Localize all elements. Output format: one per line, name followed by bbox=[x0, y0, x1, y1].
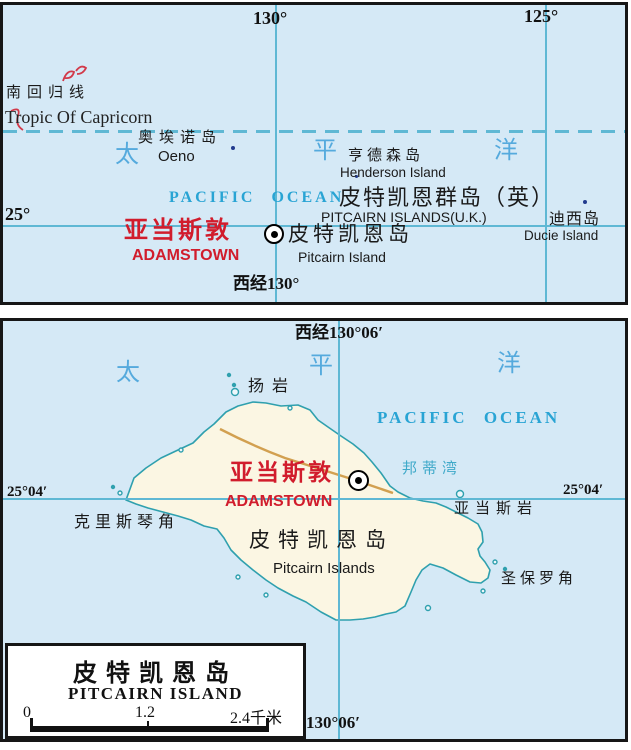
west-lon-130-06-label: 西经130°06′ bbox=[295, 324, 383, 341]
legend-title-en: PITCAIRN ISLAND bbox=[8, 684, 303, 704]
young-rock-label: 扬岩 bbox=[248, 379, 296, 395]
christian-point-label: 克里斯琴角 bbox=[74, 515, 179, 531]
tropic-label-zh: 南回归线 bbox=[6, 85, 90, 100]
oeno-island-dot bbox=[231, 146, 235, 150]
lon-label-130: 130° bbox=[253, 9, 287, 27]
meridian-line-125w bbox=[545, 5, 547, 302]
ducie-island-dot bbox=[583, 200, 587, 204]
tropic-of-capricorn-line bbox=[3, 130, 625, 133]
oeno-label-zh: 奥埃诺岛 bbox=[138, 130, 222, 145]
pacific-ocean-label: PACIFIC OCEAN bbox=[377, 409, 560, 426]
scale-tick-2-4: 2.4千米 bbox=[230, 704, 282, 728]
adams-rock-islet bbox=[457, 491, 464, 498]
ocean-char-ping: 平 bbox=[313, 139, 337, 163]
scale-bar-tick bbox=[30, 718, 33, 732]
henderson-label-zh: 亨德森岛 bbox=[348, 148, 424, 163]
adamstown-label-en: ADAMSTOWN bbox=[132, 248, 239, 264]
capital-symbol bbox=[348, 470, 369, 491]
meridian-line-130w bbox=[275, 5, 277, 302]
lat-label-right: 25°04′ bbox=[563, 483, 603, 498]
scale-bar-tick bbox=[266, 718, 269, 732]
capital-symbol bbox=[264, 224, 284, 244]
ocean-char-yang: 洋 bbox=[494, 139, 518, 163]
pitcairn-island-label-en: Pitcairn Island bbox=[298, 250, 386, 264]
lat-label-left: 25°04′ bbox=[7, 485, 47, 500]
lat-label-25: 25° bbox=[5, 205, 30, 223]
lon-label-125: 125° bbox=[524, 7, 558, 25]
adamstown-label-en: ADAMSTOWN bbox=[225, 494, 332, 510]
pitcairn-island-label-en: Pitcairn Islands bbox=[273, 561, 375, 576]
legend-box: 皮特凯恩岛 PITCAIRN ISLAND 0 1.2 2.4千米 bbox=[5, 643, 306, 739]
detail-map-panel: 西经130°06′ 太 平 洋 PACIFIC OCEAN 扬岩 邦蒂湾 亚当斯… bbox=[0, 318, 628, 742]
bottom-lon-130-06-label: 130°06′ bbox=[306, 714, 360, 731]
adamstown-label-zh: 亚当斯敦 bbox=[124, 219, 232, 243]
ocean-char-tai: 太 bbox=[116, 361, 140, 385]
scale-bar bbox=[31, 726, 268, 732]
bounty-bay-label: 邦蒂湾 bbox=[402, 461, 462, 476]
tropic-label-en: Tropic Of Capricorn bbox=[5, 108, 152, 126]
ocean-char-tai: 太 bbox=[115, 143, 139, 167]
adams-rock-label: 亚当斯岩 bbox=[454, 501, 538, 516]
overview-map-panel: 130° 125° 南回归线 Tropic Of Capricorn 奥埃诺岛 … bbox=[0, 2, 628, 305]
pitcairn-group-label-en: PITCAIRN ISLANDS(U.K.) bbox=[321, 210, 487, 224]
oeno-label-en: Oeno bbox=[158, 149, 195, 164]
scale-tick-1-2: 1.2 bbox=[135, 704, 155, 722]
pacific-ocean-label: PACIFIC OCEAN bbox=[169, 190, 344, 206]
pitcairn-island-label-zh: 皮特凯恩岛 bbox=[288, 224, 413, 245]
st-pauls-point-label: 圣保罗角 bbox=[501, 571, 577, 586]
pitcairn-island-label-zh: 皮特凯恩岛 bbox=[249, 530, 394, 551]
ocean-char-ping: 平 bbox=[309, 354, 333, 378]
adamstown-label-zh: 亚当斯敦 bbox=[230, 461, 334, 484]
legend-title-zh: 皮特凯恩岛 bbox=[8, 653, 303, 688]
west-lon-130-label: 西经130° bbox=[233, 275, 299, 292]
pitcairn-group-label-zh: 皮特凯恩群岛（英） bbox=[339, 187, 555, 209]
ducie-label-en: Ducie Island bbox=[524, 229, 598, 243]
scale-bar-tick bbox=[147, 721, 149, 732]
henderson-label-en: Henderson Island bbox=[340, 166, 446, 180]
island-outline bbox=[126, 402, 490, 620]
ocean-char-yang: 洋 bbox=[497, 352, 521, 376]
map-stage: 130° 125° 南回归线 Tropic Of Capricorn 奥埃诺岛 … bbox=[0, 0, 631, 750]
ducie-label-zh: 迪西岛 bbox=[549, 212, 600, 228]
